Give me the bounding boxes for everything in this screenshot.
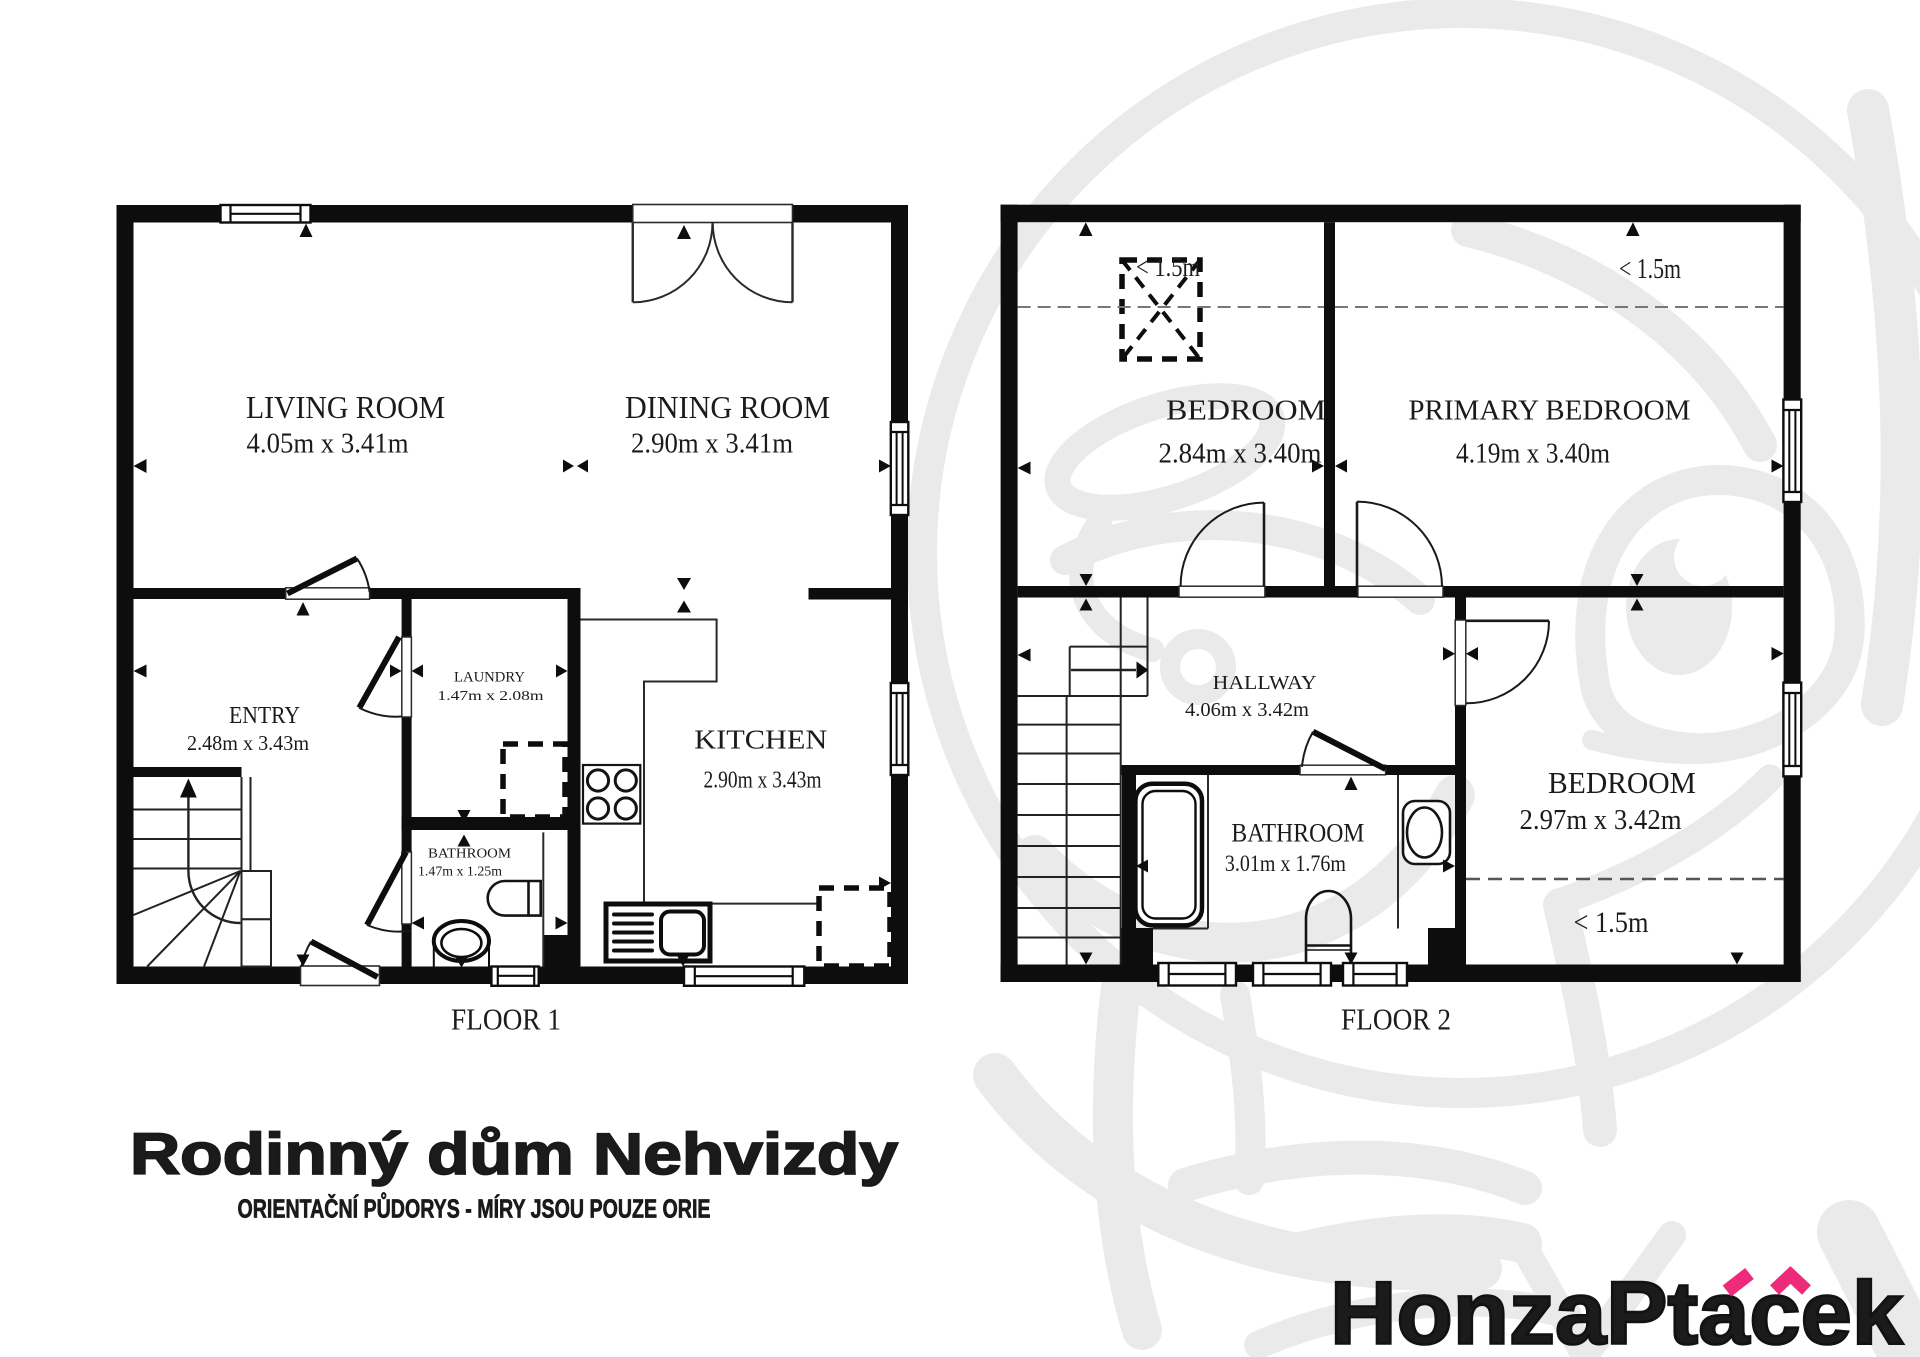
svg-text:PRIMARY BEDROOM: PRIMARY BEDROOM — [1408, 395, 1690, 427]
svg-text:FLOOR 1: FLOOR 1 — [451, 1003, 561, 1037]
svg-text:BEDROOM: BEDROOM — [1548, 765, 1696, 800]
svg-text:4.06m x 3.42m: 4.06m x 3.42m — [1185, 699, 1309, 721]
svg-text:1.47m x 1.25m: 1.47m x 1.25m — [418, 864, 502, 879]
svg-text:2.90m x 3.43m: 2.90m x 3.43m — [704, 768, 822, 794]
svg-text:4.05m x 3.41m: 4.05m x 3.41m — [247, 429, 409, 460]
svg-text:Rodinný dům Nehvizdy: Rodinný dům Nehvizdy — [130, 1122, 898, 1187]
svg-text:BATHROOM: BATHROOM — [1231, 819, 1364, 848]
svg-text:< 1.5m: < 1.5m — [1136, 252, 1200, 282]
svg-text:DINING ROOM: DINING ROOM — [625, 389, 830, 425]
svg-text:< 1.5m: < 1.5m — [1619, 254, 1681, 285]
svg-text:ENTRY: ENTRY — [229, 703, 300, 729]
svg-text:HonzaPtacek: HonzaPtacek — [1330, 1262, 1904, 1357]
svg-text:HALLWAY: HALLWAY — [1213, 672, 1317, 694]
svg-text:FLOOR 2: FLOOR 2 — [1341, 1003, 1451, 1037]
svg-text:2.90m x 3.41m: 2.90m x 3.41m — [631, 429, 793, 460]
svg-text:2.84m x 3.40m: 2.84m x 3.40m — [1159, 439, 1322, 470]
svg-text:KITCHEN: KITCHEN — [694, 725, 827, 755]
svg-text:4.19m x 3.40m: 4.19m x 3.40m — [1456, 439, 1610, 470]
svg-text:3.01m x 1.76m: 3.01m x 1.76m — [1225, 851, 1346, 876]
svg-text:2.97m x 3.42m: 2.97m x 3.42m — [1520, 805, 1682, 836]
svg-text:2.48m x 3.43m: 2.48m x 3.43m — [187, 731, 309, 755]
svg-text:LIVING ROOM: LIVING ROOM — [246, 389, 445, 425]
svg-text:LAUNDRY: LAUNDRY — [454, 670, 526, 686]
svg-text:BEDROOM: BEDROOM — [1166, 395, 1326, 427]
svg-text:ORIENTAČNÍ PŮDORYS - MÍRY JSOU: ORIENTAČNÍ PŮDORYS - MÍRY JSOU POUZE ORI… — [238, 1192, 711, 1224]
svg-text:1.47m x 2.08m: 1.47m x 2.08m — [438, 689, 544, 704]
svg-text:BATHROOM: BATHROOM — [428, 847, 512, 862]
svg-text:< 1.5m: < 1.5m — [1574, 906, 1649, 939]
